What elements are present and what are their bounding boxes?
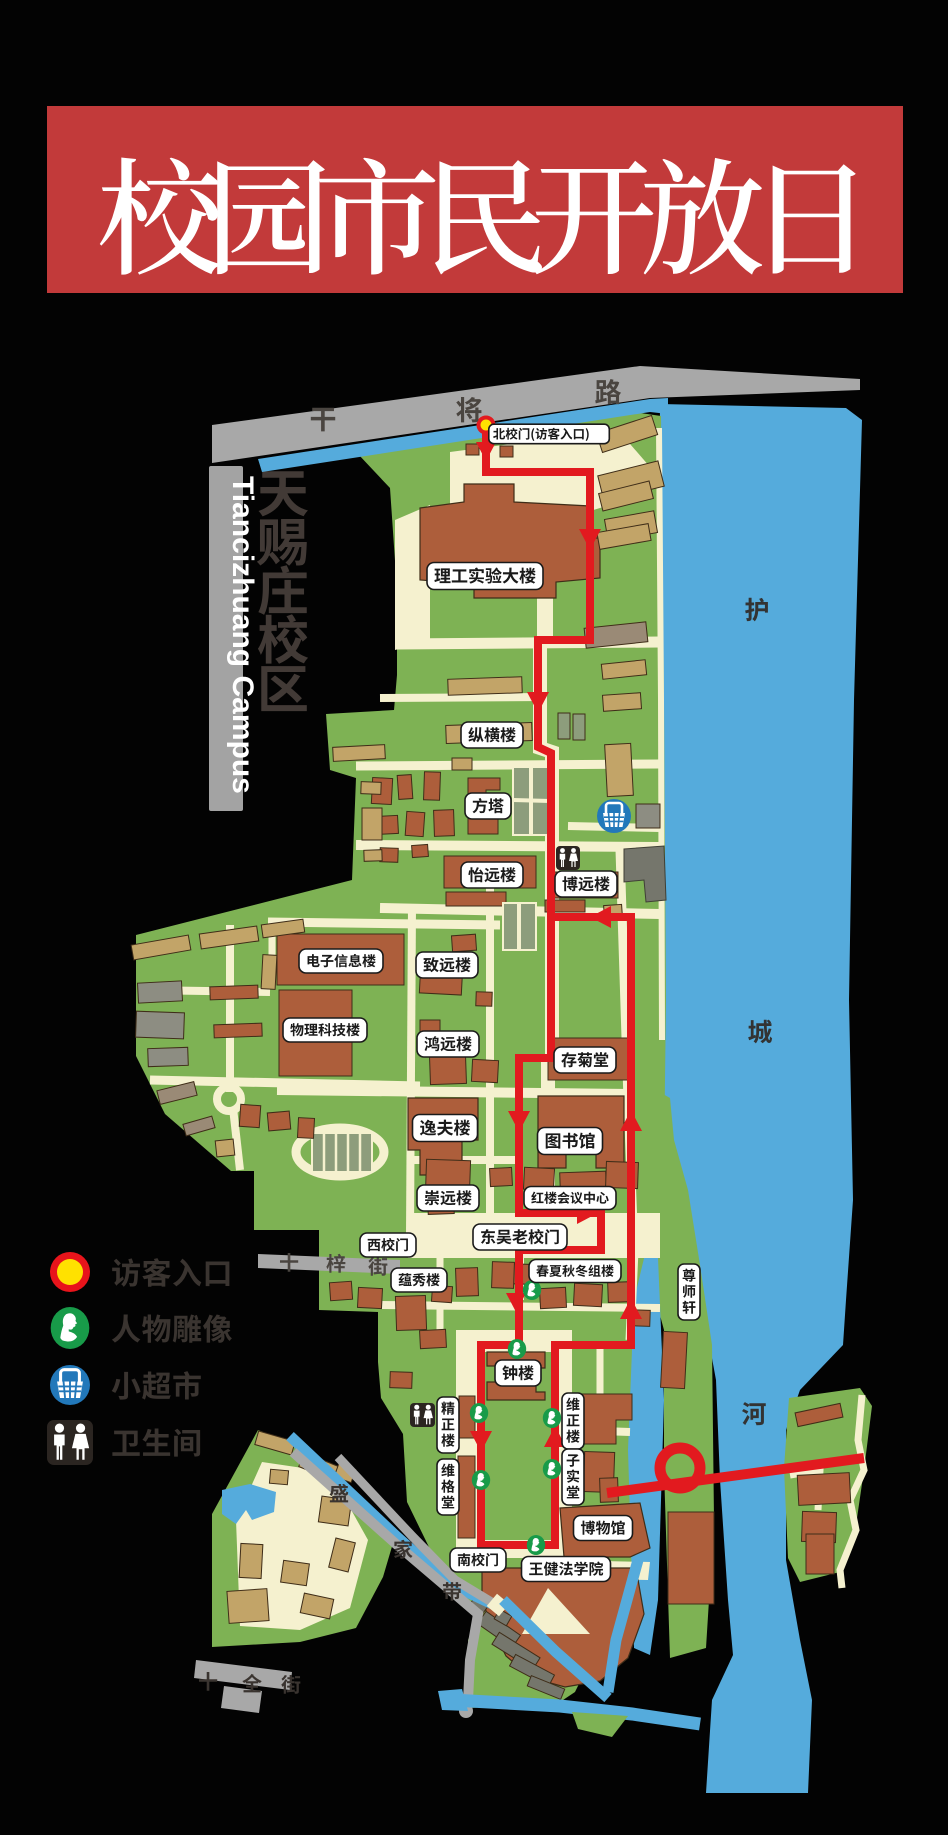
svg-text:Tiancizhuang Campus: Tiancizhuang Campus — [226, 476, 259, 794]
